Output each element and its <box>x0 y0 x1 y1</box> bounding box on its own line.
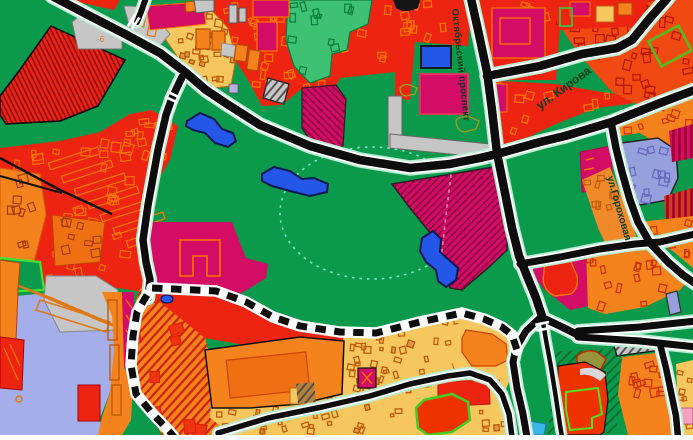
svg-text:-6: -6 <box>97 35 105 44</box>
